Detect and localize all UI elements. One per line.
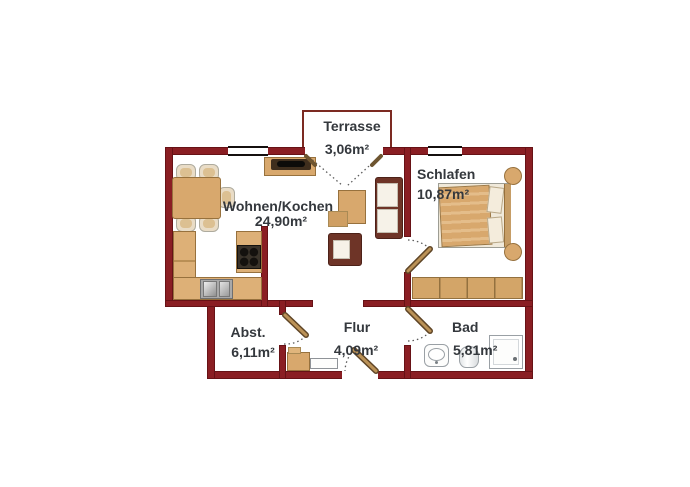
sink-basin-right — [219, 281, 230, 297]
wall-right — [525, 147, 533, 379]
tv-screen — [277, 161, 305, 167]
wall-storage-hall-stub — [279, 300, 286, 315]
window-living-room — [228, 146, 268, 156]
wall-bedroom-west-stub — [404, 272, 411, 307]
bed-pillow — [486, 186, 504, 214]
room-area-terrasse: 3,06m² — [325, 142, 369, 156]
wall-left — [165, 147, 173, 307]
bed-headboard — [504, 184, 511, 247]
wall-kitchen-stub — [261, 226, 268, 307]
sofa-cushion — [377, 183, 398, 207]
sink-basin-left — [203, 281, 217, 297]
room-area-schlafen: 10,87m² — [417, 187, 469, 201]
wall-bedroom-west-upper — [404, 147, 411, 237]
washbasin-bowl — [428, 348, 445, 361]
room-label-flur: Flur — [344, 320, 370, 334]
hall-cabinet — [287, 352, 310, 371]
sofa-cushion — [377, 209, 398, 233]
bathroom-door-leaf — [408, 309, 430, 331]
room-label-schlafen: Schlafen — [417, 167, 475, 181]
hall-bench — [310, 358, 338, 369]
wall-hall-bath-lower — [404, 345, 411, 379]
wall-storage-hall-lower — [279, 345, 286, 379]
wardrobe — [412, 277, 523, 299]
window-bedroom — [428, 146, 462, 156]
bedroom-door-leaf — [408, 249, 430, 271]
dining-table — [172, 177, 221, 219]
bedroom-door-arc — [408, 240, 430, 249]
room-area-bad: 5,81m² — [453, 343, 497, 357]
armchair-cushion — [333, 240, 350, 259]
hall-cabinet-top — [288, 347, 301, 354]
room-area-abstellraum: 6,11m² — [231, 345, 275, 359]
room-label-abstellraum: Abst. — [231, 325, 266, 339]
kitchen-counter-seam — [174, 260, 195, 262]
room-label-wohnen-kochen: Wohnen/Kochen — [223, 199, 333, 213]
wall-mid-right — [363, 300, 533, 307]
floor-plan: Terrasse 3,06m² Wohnen/Kochen 24,90m² Sc… — [0, 0, 690, 487]
storage-door-arc — [284, 336, 306, 344]
room-area-flur: 4,09m² — [334, 343, 378, 357]
stove — [237, 245, 261, 269]
wall-mid-left — [165, 300, 313, 307]
room-area-wohnen-kochen: 24,90m² — [255, 214, 307, 228]
bathroom-door-leaf — [408, 309, 430, 331]
entrance-door-opening — [342, 370, 378, 380]
storage-door-leaf — [285, 315, 306, 335]
nightstand — [504, 243, 522, 261]
nightstand — [504, 167, 522, 185]
storage-door-leaf — [285, 315, 306, 335]
room-label-terrasse: Terrasse — [323, 119, 380, 133]
washbasin-drain — [435, 361, 438, 364]
room-label-bad: Bad — [452, 320, 478, 334]
bathroom-door-arc — [408, 332, 430, 341]
shower-drain — [513, 357, 517, 361]
bedroom-door-leaf — [408, 249, 430, 271]
terrace-door-leaf — [372, 156, 381, 165]
bed-pillow — [487, 216, 504, 243]
wall-storage-west — [207, 300, 215, 379]
